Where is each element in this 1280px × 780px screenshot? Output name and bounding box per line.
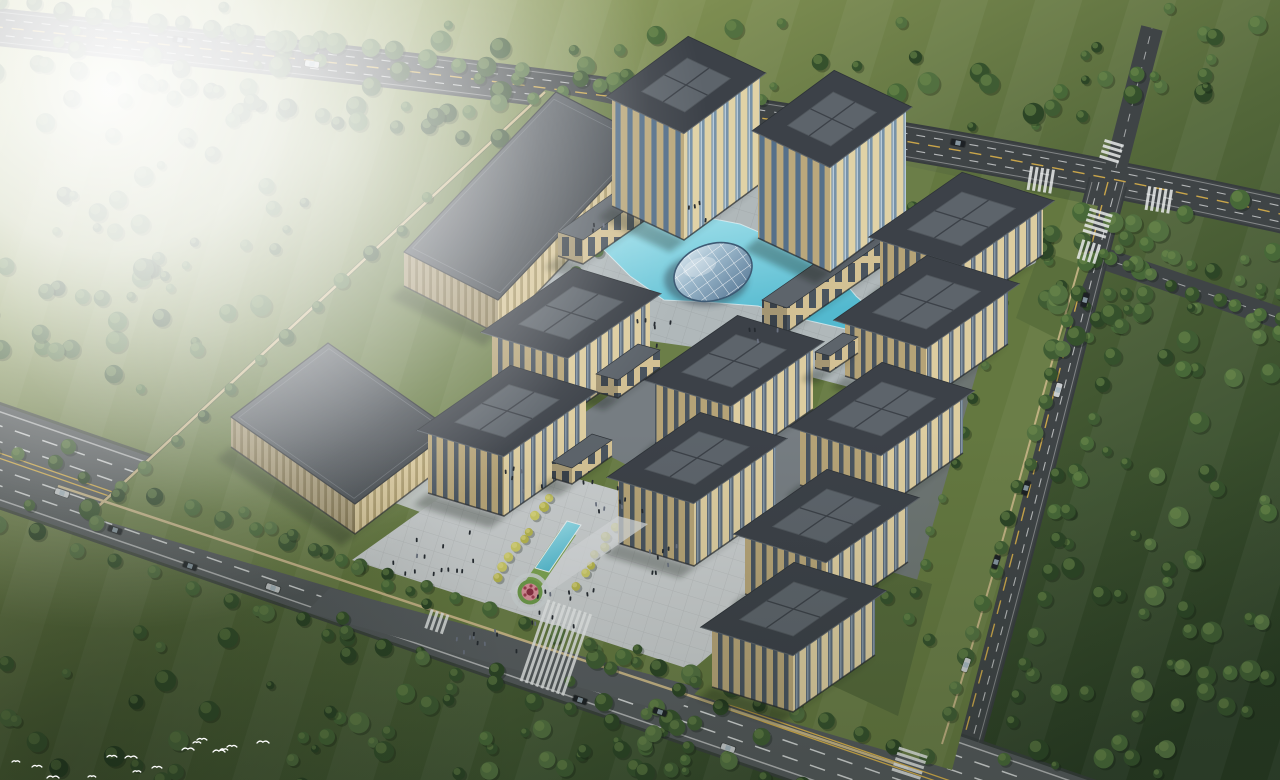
rendering-canvas <box>0 0 1280 780</box>
aerial-architectural-rendering <box>0 0 1280 780</box>
atmosphere-effects <box>0 0 1280 780</box>
